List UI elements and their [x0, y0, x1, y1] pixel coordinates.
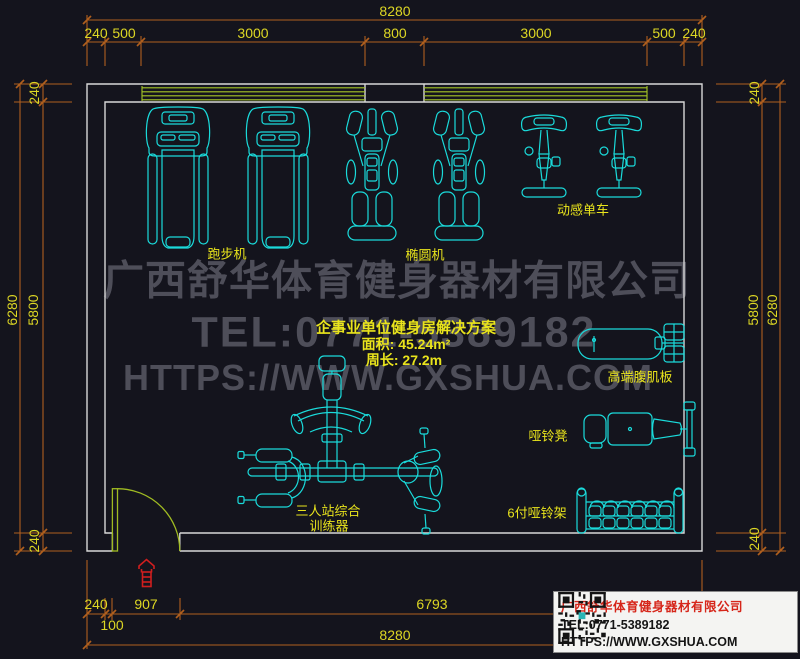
dim-left-seg: 240 [27, 529, 41, 552]
dim-top-seg: 500 [652, 26, 675, 40]
label-dumbbell-bench: 哑铃凳 [528, 430, 567, 443]
plan-area: 面积: 45.24m² [362, 337, 451, 351]
dim-right-seg: 5800 [746, 294, 760, 325]
plan-title: 企事业单位健身房解决方案 [316, 321, 496, 336]
dim-top-seg: 3000 [237, 26, 268, 40]
annotation-layer: 8280 240 500 3000 800 3000 500 240 6280 … [0, 0, 800, 659]
dim-bottom-seg: 907 [134, 597, 157, 611]
dim-left-seg: 5800 [26, 294, 40, 325]
dim-bottom-seg: 240 [84, 597, 107, 611]
label-dumbbell-rack: 6付哑铃架 [507, 507, 566, 520]
dim-top-seg: 240 [682, 26, 705, 40]
dim-top-seg: 800 [383, 26, 406, 40]
dim-right-seg: 240 [747, 527, 761, 550]
label-ab-board: 高端腹肌板 [607, 371, 672, 384]
dim-right-seg: 240 [747, 81, 761, 104]
company-info-card: 广西舒华体育健身器材有限公司 TEL:0771-5389182 HTTPS://… [553, 591, 798, 653]
dim-top-seg: 3000 [520, 26, 551, 40]
dim-top-total: 8280 [379, 4, 410, 18]
dim-right-total: 6280 [765, 294, 779, 325]
plan-perimeter: 周长: 27.2m [366, 353, 442, 367]
label-spin-bike: 动感单车 [557, 204, 609, 217]
dim-top-seg: 240 [84, 26, 107, 40]
dim-bottom-seg: 6793 [416, 597, 447, 611]
qr-code [558, 592, 606, 644]
dim-top-seg: 500 [112, 26, 135, 40]
label-multi-station-2: 训练器 [309, 520, 348, 533]
dim-bottom-offset: 100 [100, 618, 123, 632]
cad-floor-plan: 广西舒华体育健身器材有限公司 TEL:0771-5389182 HTTPS://… [0, 0, 800, 659]
dim-bottom-total: 8280 [379, 628, 410, 642]
label-elliptical: 椭圆机 [405, 249, 444, 262]
label-multi-station-1: 三人站综合 [295, 505, 360, 518]
label-treadmill: 跑步机 [207, 248, 246, 261]
dim-left-seg: 240 [27, 81, 41, 104]
dim-left-total: 6280 [5, 294, 19, 325]
